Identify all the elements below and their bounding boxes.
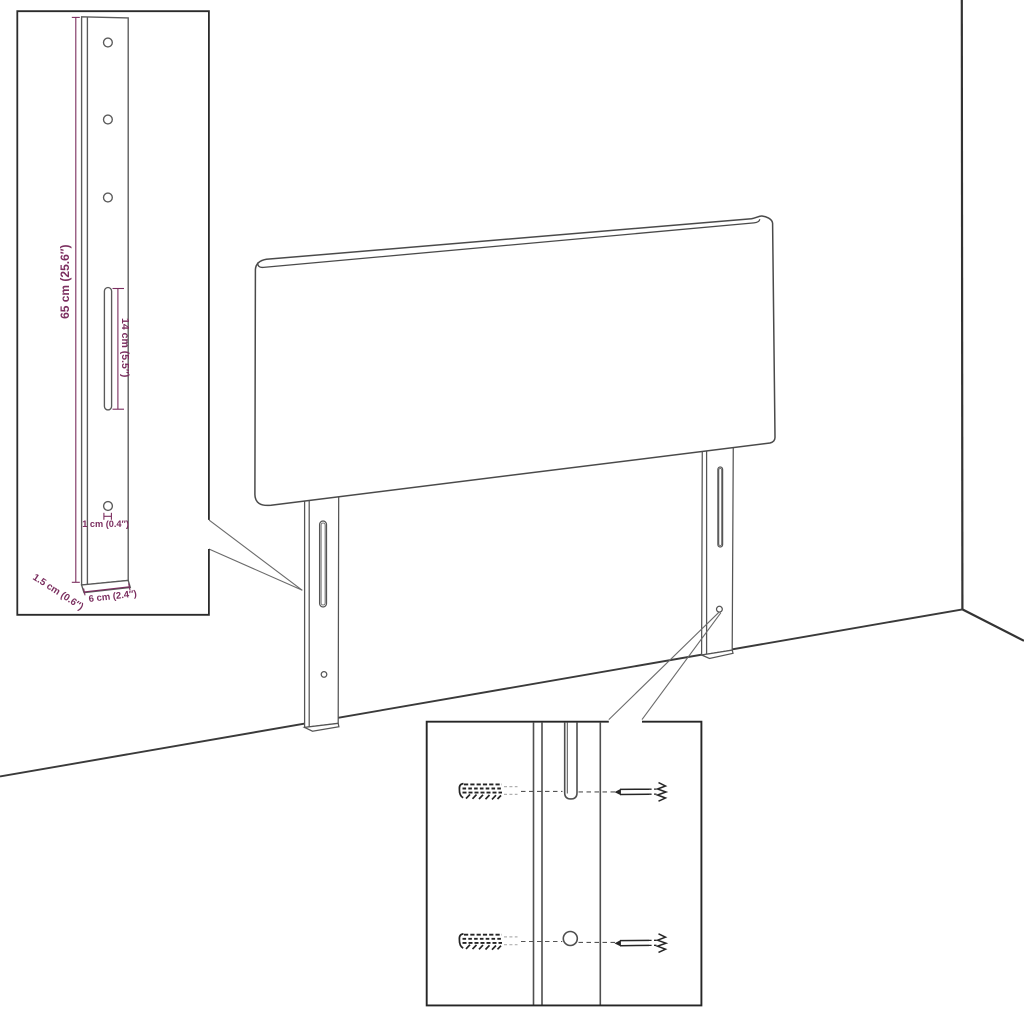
svg-text:1 cm (0.4″): 1 cm (0.4″) (82, 519, 129, 529)
svg-text:65 cm (25.6″): 65 cm (25.6″) (58, 244, 72, 318)
svg-text:14 cm (5.5″): 14 cm (5.5″) (119, 318, 131, 377)
